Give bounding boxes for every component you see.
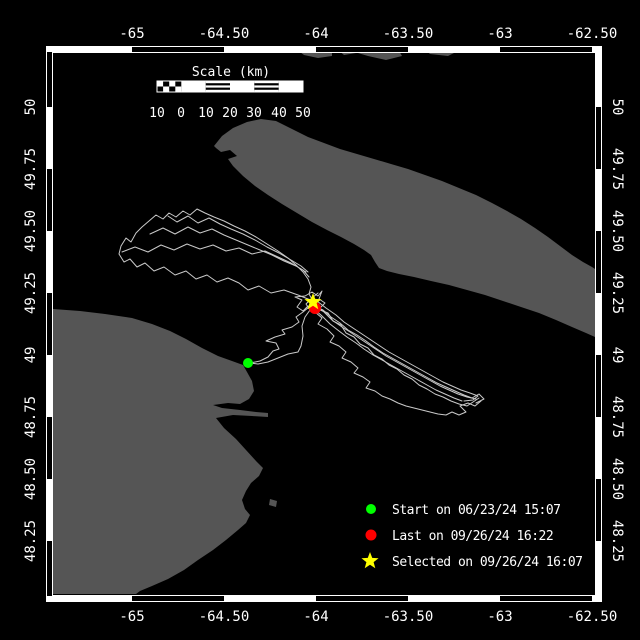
axis-tick-label: 49 bbox=[609, 347, 625, 364]
selected-star-icon bbox=[361, 552, 378, 568]
map-canvas[interactable]: -65 -64.50 -64 -63.50 -63 -62.50 -65 -64… bbox=[0, 0, 640, 640]
axis-tick-label: -64.50 bbox=[199, 26, 250, 42]
legend-selected-label: Selected on 09/26/24 16:07 bbox=[392, 555, 583, 570]
land-small-island bbox=[269, 499, 277, 507]
axis-tick-label: 48.75 bbox=[609, 396, 625, 438]
track-map-window: -65 -64.50 -64 -63.50 -63 -62.50 -65 -64… bbox=[0, 0, 640, 640]
legend: Start on 06/23/24 15:07 Last on 09/26/24… bbox=[361, 503, 582, 570]
scale-checker-cell bbox=[169, 81, 175, 87]
land-north-shore-patch bbox=[358, 47, 402, 60]
axis-tick-label: 49.50 bbox=[23, 210, 39, 252]
track-line bbox=[122, 244, 309, 277]
axis-tick-label: -62.50 bbox=[567, 609, 618, 625]
axis-tick-label: 50 bbox=[23, 99, 39, 116]
legend-start-label: Start on 06/23/24 15:07 bbox=[392, 503, 561, 518]
legend-item-start: Start on 06/23/24 15:07 bbox=[366, 503, 561, 518]
longitude-axis-top: -65 -64.50 -64 -63.50 -63 -62.50 bbox=[119, 26, 617, 42]
scale-tick-label: 10 bbox=[149, 106, 165, 121]
axis-tick-label: -64 bbox=[303, 26, 328, 42]
legend-item-selected: Selected on 09/26/24 16:07 bbox=[361, 552, 582, 570]
axis-tick-label: 48.25 bbox=[23, 520, 39, 562]
axis-tick-label: 49.25 bbox=[609, 272, 625, 314]
latitude-axis-right: 50 49.75 49.50 49.25 49 48.75 48.50 48.2… bbox=[609, 99, 625, 563]
scale-bar-title: Scale (km) bbox=[192, 65, 270, 80]
scale-tick-label: 20 bbox=[222, 106, 238, 121]
land-anticosti-island bbox=[214, 119, 595, 337]
axis-tick-label: -62.50 bbox=[567, 26, 618, 42]
axis-tick-label: 50 bbox=[609, 99, 625, 116]
land-gaspe-peninsula bbox=[53, 309, 268, 594]
axis-tick-label: 49.25 bbox=[23, 272, 39, 314]
start-marker[interactable] bbox=[243, 358, 253, 368]
axis-tick-label: -63 bbox=[487, 609, 512, 625]
axis-tick-label: 49 bbox=[23, 347, 39, 364]
scale-checker-cell bbox=[157, 81, 163, 87]
scale-checker-cell bbox=[175, 87, 181, 93]
scale-solid-section bbox=[181, 81, 205, 92]
scale-bar: Scale (km) 10 0 10 20 30 40 50 bbox=[149, 65, 311, 121]
track-line bbox=[250, 303, 314, 363]
scale-stripe bbox=[254, 85, 278, 87]
track-line bbox=[119, 209, 313, 301]
axis-tick-label: 49.75 bbox=[609, 148, 625, 190]
axis-tick-label: -63.50 bbox=[383, 26, 434, 42]
axis-tick-label: -64.50 bbox=[199, 609, 250, 625]
axis-tick-label: -65 bbox=[119, 26, 144, 42]
scale-tick-label: 50 bbox=[295, 106, 311, 121]
scale-tick-label: 0 bbox=[177, 106, 185, 121]
legend-item-last: Last on 09/26/24 16:22 bbox=[366, 529, 554, 544]
scale-bar-labels: 10 0 10 20 30 40 50 bbox=[149, 106, 311, 121]
latitude-axis-left: 50 49.75 49.50 49.25 49 48.75 48.50 48.2… bbox=[23, 99, 39, 563]
axis-tick-label: 48.75 bbox=[23, 396, 39, 438]
scale-stripe bbox=[206, 85, 230, 87]
land-north-shore-patch bbox=[338, 48, 356, 55]
last-dot-icon bbox=[366, 530, 377, 541]
axis-tick-label: -64 bbox=[303, 609, 328, 625]
scale-tick-label: 40 bbox=[271, 106, 287, 121]
track-line bbox=[168, 216, 308, 272]
legend-last-label: Last on 09/26/24 16:22 bbox=[392, 529, 553, 544]
scale-checker-cell bbox=[163, 87, 169, 93]
start-dot-icon bbox=[366, 504, 376, 514]
axis-tick-label: 48.50 bbox=[23, 458, 39, 500]
axis-tick-label: 49.50 bbox=[609, 210, 625, 252]
axis-tick-label: 48.25 bbox=[609, 520, 625, 562]
axis-tick-label: -63.50 bbox=[383, 609, 434, 625]
axis-tick-label: 48.50 bbox=[609, 458, 625, 500]
track-line bbox=[317, 301, 478, 401]
axis-tick-label: -63 bbox=[487, 26, 512, 42]
track-line bbox=[315, 305, 476, 399]
scale-solid-section bbox=[279, 81, 303, 92]
axis-tick-label: -65 bbox=[119, 609, 144, 625]
scale-tick-label: 10 bbox=[198, 106, 214, 121]
track-line bbox=[250, 293, 318, 364]
scale-solid-section bbox=[230, 81, 254, 92]
longitude-axis-bottom: -65 -64.50 -64 -63.50 -63 -62.50 bbox=[119, 609, 617, 625]
axis-tick-label: 49.75 bbox=[23, 148, 39, 190]
scale-tick-label: 30 bbox=[246, 106, 262, 121]
